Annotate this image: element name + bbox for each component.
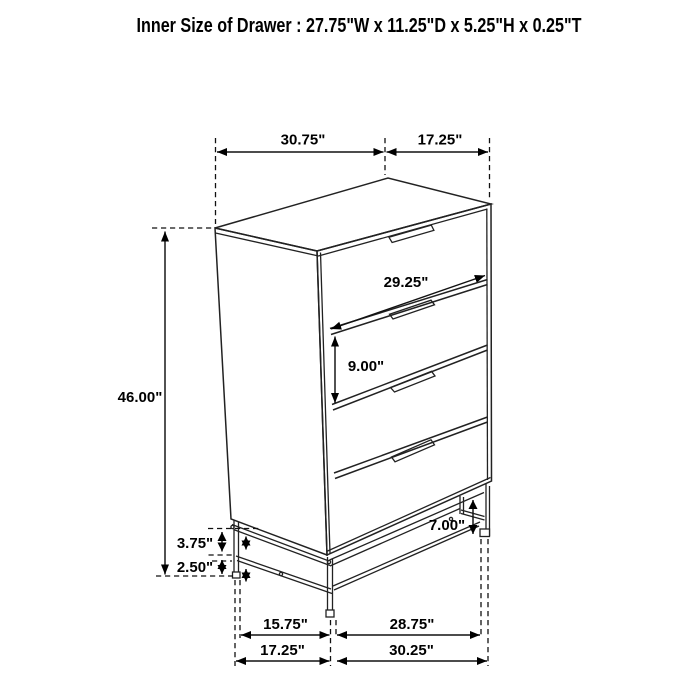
svg-text:17.25": 17.25" [260,642,305,659]
svg-text:2.50": 2.50" [177,559,213,576]
svg-text:17.25": 17.25" [418,132,463,149]
svg-text:9.00": 9.00" [348,358,384,375]
svg-text:30.75": 30.75" [281,132,326,149]
svg-text:Inner Size of Drawer : 27.75"W: Inner Size of Drawer : 27.75"W x 11.25"D… [137,15,582,37]
svg-text:29.25": 29.25" [384,274,429,291]
svg-text:7.00": 7.00" [429,517,465,534]
svg-text:3.75": 3.75" [177,535,213,552]
svg-text:28.75": 28.75" [390,616,435,633]
svg-text:15.75": 15.75" [263,616,308,633]
svg-text:46.00": 46.00" [118,389,163,406]
svg-text:30.25": 30.25" [389,642,434,659]
